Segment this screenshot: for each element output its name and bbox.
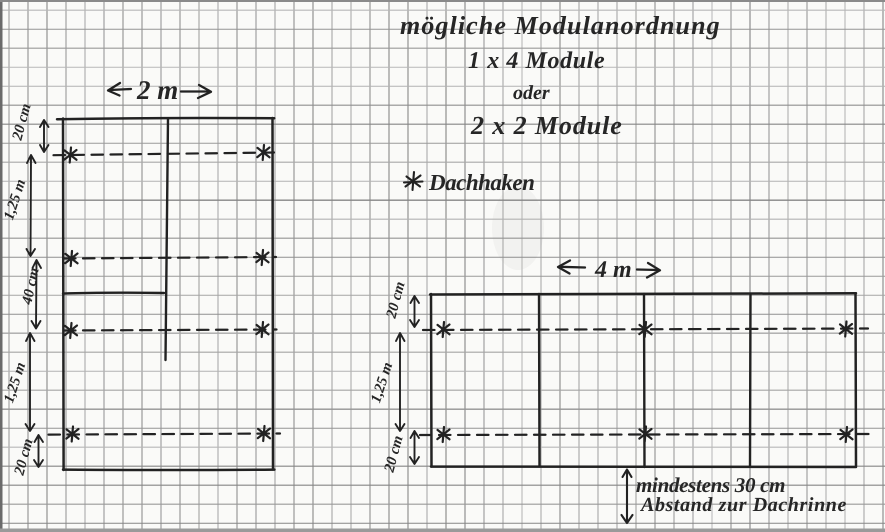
svg-text:2 m: 2 m xyxy=(136,75,178,105)
svg-text:Dachhaken: Dachhaken xyxy=(428,170,534,195)
svg-text:oder: oder xyxy=(513,82,550,104)
svg-text:mögliche Modulanordnung: mögliche Modulanordnung xyxy=(400,11,721,40)
svg-text:4 m: 4 m xyxy=(594,257,632,283)
svg-text:Abstand zur Dachrinne: Abstand zur Dachrinne xyxy=(639,494,847,516)
svg-text:2 x 2 Module: 2 x 2 Module xyxy=(470,111,623,140)
svg-text:1 x 4 Module: 1 x 4 Module xyxy=(468,48,605,74)
